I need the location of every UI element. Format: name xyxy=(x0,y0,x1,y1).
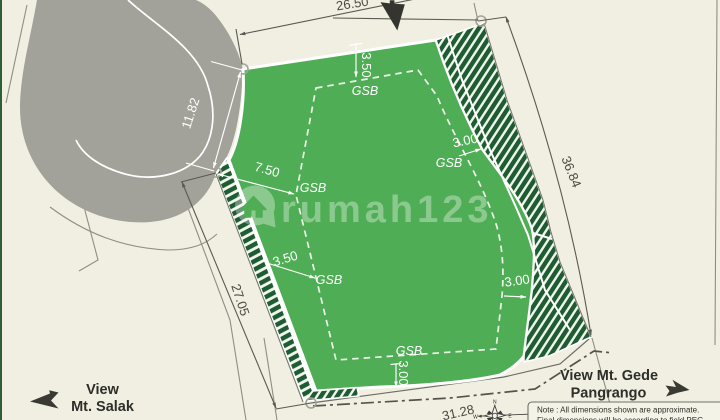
svg-text:View Mt. Gede: View Mt. Gede xyxy=(560,368,658,384)
svg-text:GSB: GSB xyxy=(396,344,422,358)
svg-text:W: W xyxy=(473,415,478,420)
svg-text:rumah123: rumah123 xyxy=(281,189,493,231)
svg-text:GSB: GSB xyxy=(436,156,462,170)
svg-text:3.50: 3.50 xyxy=(359,52,374,77)
svg-text:Final dimensions will be accor: Final dimensions will be according to fi… xyxy=(537,416,703,420)
svg-text:Note : All dimensions shown ar: Note : All dimensions shown are approxim… xyxy=(537,406,699,415)
svg-text:GSB: GSB xyxy=(316,273,342,287)
svg-text:Pangrango: Pangrango xyxy=(571,386,647,402)
svg-text:GSB: GSB xyxy=(352,84,378,98)
svg-text:3.00: 3.00 xyxy=(396,360,411,385)
svg-text:GSB: GSB xyxy=(300,181,326,195)
svg-text:View: View xyxy=(86,382,120,398)
svg-text:N: N xyxy=(493,400,497,406)
svg-text:Mt. Salak: Mt. Salak xyxy=(71,399,135,415)
